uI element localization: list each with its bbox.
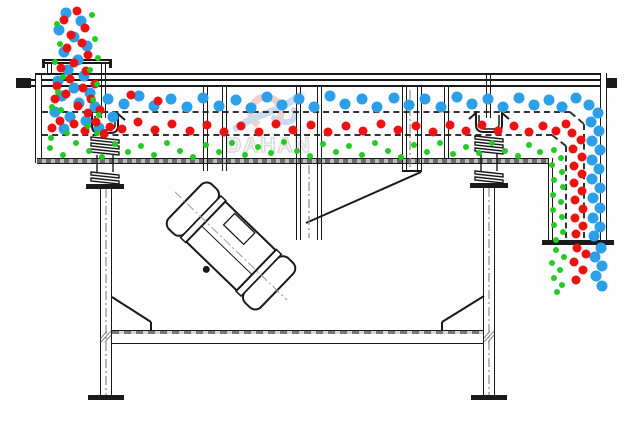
particle-coarse_blue	[262, 92, 273, 103]
particle-fine_green	[424, 149, 430, 155]
vibrating-screen-diagram: ® DAHAN	[0, 0, 638, 428]
particle-medium_red	[572, 276, 581, 285]
particle-medium_red	[66, 75, 75, 84]
particle-fine_green	[60, 152, 66, 158]
particle-fine_green	[372, 140, 378, 146]
particle-medium_red	[570, 258, 579, 267]
particle-medium_red	[525, 128, 534, 137]
particle-fine_green	[559, 214, 565, 220]
particle-medium_red	[272, 120, 281, 129]
particle-medium_red	[579, 205, 588, 214]
particle-fine_green	[48, 135, 54, 141]
particle-medium_red	[478, 121, 487, 130]
particle-fine_green	[60, 74, 66, 80]
particle-medium_red	[579, 266, 588, 275]
particle-medium_red	[220, 128, 229, 137]
particle-coarse_blue	[389, 93, 400, 104]
particle-coarse_blue	[588, 193, 599, 204]
particle-fine_green	[437, 140, 443, 146]
particle-medium_red	[462, 127, 471, 136]
particle-coarse_blue	[597, 261, 608, 272]
particle-medium_red	[168, 120, 177, 129]
particle-fine_green	[307, 153, 313, 159]
particle-fine_green	[346, 143, 352, 149]
particle-fine_green	[515, 153, 521, 159]
particle-fine_green	[476, 150, 482, 156]
particle-coarse_blue	[514, 93, 525, 104]
particle-fine_green	[164, 140, 170, 146]
particle-fine_green	[333, 149, 339, 155]
particle-fine_green	[95, 55, 101, 61]
particle-fine_green	[268, 150, 274, 156]
particle-fine_green	[94, 81, 100, 87]
particle-medium_red	[127, 91, 136, 100]
particle-fine_green	[54, 21, 60, 27]
particle-fine_green	[489, 140, 495, 146]
particle-coarse_blue	[246, 103, 257, 114]
particle-fine_green	[216, 149, 222, 155]
particle-fine_green	[537, 149, 543, 155]
particle-medium_red	[92, 118, 101, 127]
particle-fine_green	[94, 130, 100, 136]
particle-medium_red	[342, 122, 351, 131]
particle-coarse_blue	[529, 100, 540, 111]
particle-coarse_blue	[166, 94, 177, 105]
particle-coarse_blue	[594, 126, 605, 137]
particle-fine_green	[64, 130, 70, 136]
particle-medium_red	[84, 109, 93, 118]
particle-coarse_blue	[103, 94, 114, 105]
particle-fine_green	[558, 155, 564, 161]
particle-medium_red	[572, 230, 581, 239]
particle-medium_red	[73, 7, 82, 16]
particle-medium_red	[412, 122, 421, 131]
particle-fine_green	[549, 260, 555, 266]
particle-medium_red	[570, 179, 579, 188]
particle-coarse_blue	[404, 100, 415, 111]
particle-fine_green	[398, 154, 404, 160]
particle-medium_red	[578, 187, 587, 196]
particle-coarse_blue	[277, 100, 288, 111]
particle-fine_green	[554, 289, 560, 295]
particle-medium_red	[510, 122, 519, 131]
particle-fine_green	[96, 112, 102, 118]
particle-coarse_blue	[357, 94, 368, 105]
particle-fine_green	[551, 275, 557, 281]
particle-medium_red	[203, 121, 212, 130]
particle-coarse_blue	[597, 281, 608, 292]
particle-coarse_blue	[571, 93, 582, 104]
particle-medium_red	[394, 126, 403, 135]
particle-fine_green	[203, 142, 209, 148]
particle-coarse_blue	[108, 112, 119, 123]
particle-medium_red	[56, 117, 65, 126]
particle-coarse_blue	[198, 93, 209, 104]
particle-medium_red	[578, 153, 587, 162]
particle-fine_green	[558, 199, 564, 205]
particle-medium_red	[569, 145, 578, 154]
particle-medium_red	[446, 121, 455, 130]
particle-medium_red	[78, 39, 87, 48]
particle-fine_green	[560, 184, 566, 190]
particle-medium_red	[571, 196, 580, 205]
particle-coarse_blue	[231, 95, 242, 106]
particle-fine_green	[90, 97, 96, 103]
particle-medium_red	[377, 120, 386, 129]
particle-medium_red	[48, 124, 57, 133]
particle-coarse_blue	[294, 94, 305, 105]
particle-fine_green	[89, 12, 95, 18]
particle-medium_red	[552, 127, 561, 136]
particle-fine_green	[526, 142, 532, 148]
particle-fine_green	[559, 282, 565, 288]
particle-fine_green	[125, 149, 131, 155]
particle-fine_green	[281, 139, 287, 145]
particle-coarse_blue	[594, 164, 605, 175]
particle-fine_green	[99, 154, 105, 160]
particle-fine_green	[553, 237, 559, 243]
particle-fine_green	[92, 36, 98, 42]
particle-medium_red	[79, 84, 88, 93]
particle-medium_red	[573, 244, 582, 253]
particle-coarse_blue	[436, 102, 447, 113]
particle-medium_red	[57, 64, 66, 73]
particle-medium_red	[84, 51, 93, 60]
particle-medium_red	[70, 120, 79, 129]
particle-coarse_blue	[498, 102, 509, 113]
particle-medium_red	[359, 127, 368, 136]
particle-fine_green	[450, 151, 456, 157]
particle-fine_green	[255, 144, 261, 150]
particle-medium_red	[154, 97, 163, 106]
particle-fine_green	[553, 247, 559, 253]
particle-coarse_blue	[544, 95, 555, 106]
particle-medium_red	[74, 102, 83, 111]
particle-fine_green	[85, 123, 91, 129]
particle-layer	[0, 0, 638, 428]
particle-medium_red	[151, 126, 160, 135]
particle-medium_red	[81, 24, 90, 33]
particle-medium_red	[570, 162, 579, 171]
particle-coarse_blue	[340, 99, 351, 110]
particle-fine_green	[47, 145, 53, 151]
particle-medium_red	[237, 122, 246, 131]
particle-fine_green	[49, 104, 55, 110]
particle-coarse_blue	[420, 94, 431, 105]
particle-coarse_blue	[595, 145, 606, 156]
particle-fine_green	[559, 169, 565, 175]
particle-medium_red	[582, 250, 591, 259]
particle-medium_red	[539, 122, 548, 131]
particle-fine_green	[359, 152, 365, 158]
particle-coarse_blue	[452, 92, 463, 103]
particle-coarse_blue	[595, 183, 606, 194]
particle-fine_green	[551, 177, 557, 183]
particle-fine_green	[73, 140, 79, 146]
particle-medium_red	[571, 214, 580, 223]
particle-fine_green	[87, 67, 93, 73]
particle-medium_red	[562, 120, 571, 129]
particle-fine_green	[385, 148, 391, 154]
particle-fine_green	[190, 154, 196, 160]
particle-medium_red	[67, 31, 76, 40]
particle-coarse_blue	[309, 102, 320, 113]
particle-coarse_blue	[119, 99, 130, 110]
particle-fine_green	[549, 162, 555, 168]
particle-fine_green	[550, 192, 556, 198]
particle-medium_red	[578, 170, 587, 179]
particle-fine_green	[294, 148, 300, 154]
particle-fine_green	[55, 89, 61, 95]
particle-fine_green	[502, 148, 508, 154]
particle-coarse_blue	[325, 91, 336, 102]
particle-medium_red	[577, 136, 586, 145]
particle-fine_green	[58, 107, 64, 113]
particle-coarse_blue	[595, 203, 606, 214]
particle-medium_red	[324, 128, 333, 137]
particle-medium_red	[62, 90, 71, 99]
particle-fine_green	[229, 140, 235, 146]
particle-fine_green	[320, 141, 326, 147]
particle-medium_red	[429, 128, 438, 137]
particle-coarse_blue	[372, 102, 383, 113]
particle-medium_red	[568, 129, 577, 138]
particle-medium_red	[100, 130, 109, 139]
particle-medium_red	[255, 128, 264, 137]
particle-medium_red	[289, 126, 298, 135]
particle-fine_green	[151, 152, 157, 158]
particle-coarse_blue	[214, 101, 225, 112]
particle-fine_green	[112, 141, 118, 147]
particle-fine_green	[551, 147, 557, 153]
particle-fine_green	[177, 148, 183, 154]
particle-coarse_blue	[483, 94, 494, 105]
particle-medium_red	[51, 95, 60, 104]
particle-fine_green	[138, 143, 144, 149]
particle-fine_green	[411, 142, 417, 148]
particle-fine_green	[463, 144, 469, 150]
particle-medium_red	[70, 59, 79, 68]
particle-medium_red	[186, 127, 195, 136]
particle-medium_red	[134, 118, 143, 127]
particle-fine_green	[52, 59, 58, 65]
particle-fine_green	[57, 41, 63, 47]
particle-coarse_blue	[557, 102, 568, 113]
particle-medium_red	[60, 16, 69, 25]
particle-coarse_blue	[182, 102, 193, 113]
particle-medium_red	[118, 125, 127, 134]
particle-medium_red	[579, 222, 588, 231]
particle-fine_green	[560, 229, 566, 235]
particle-medium_red	[63, 44, 72, 53]
particle-fine_green	[550, 207, 556, 213]
particle-medium_red	[307, 121, 316, 130]
particle-coarse_blue	[467, 99, 478, 110]
particle-fine_green	[242, 152, 248, 158]
particle-fine_green	[557, 267, 563, 273]
particle-fine_green	[86, 148, 92, 154]
particle-medium_red	[494, 127, 503, 136]
particle-fine_green	[561, 254, 567, 260]
particle-fine_green	[551, 222, 557, 228]
particle-coarse_blue	[589, 231, 600, 242]
